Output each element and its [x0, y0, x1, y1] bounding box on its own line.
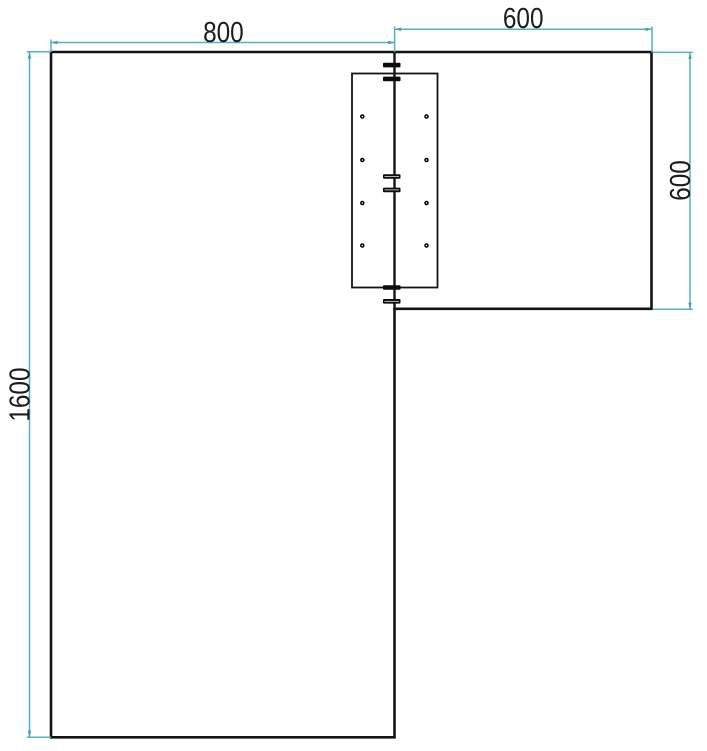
svg-text:800: 800: [203, 16, 244, 48]
svg-text:1600: 1600: [4, 368, 36, 422]
svg-text:600: 600: [503, 2, 544, 34]
svg-text:600: 600: [664, 160, 696, 201]
